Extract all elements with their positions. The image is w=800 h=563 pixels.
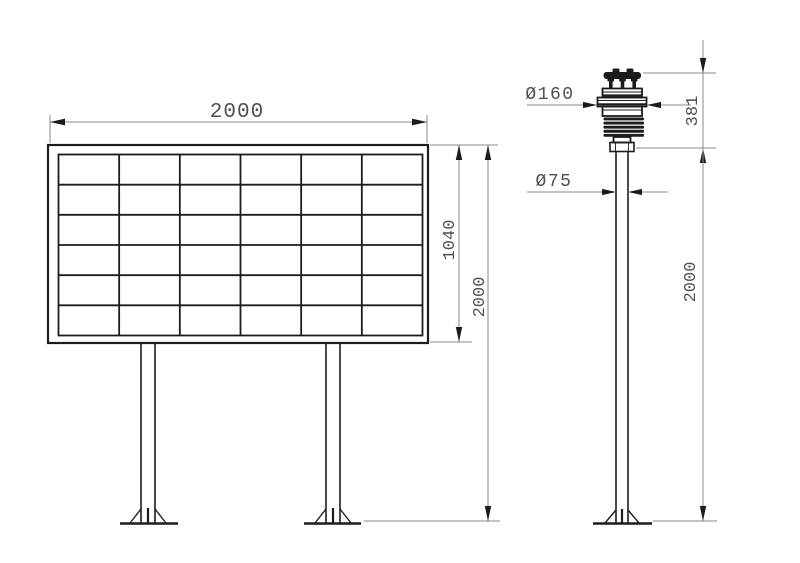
board-dimensions: 2000 1040 2000: [50, 101, 498, 521]
sensor-body-lower: [603, 107, 643, 117]
arrowhead-up: [485, 145, 491, 160]
dim-label-board-total-height: 2000: [471, 277, 490, 318]
sensor-connector: [610, 143, 634, 152]
arrowhead-down: [700, 506, 706, 521]
dim-label-sensor-diameter: Ø160: [525, 85, 574, 105]
board-outer-frame: [48, 145, 428, 343]
technical-drawing-canvas: 2000 1040 2000: [0, 0, 800, 563]
pole-dimensions: Ø160 Ø75 381 2000: [525, 40, 716, 521]
dim-board-total-height: 2000: [471, 145, 491, 521]
board-right-leg: [326, 343, 340, 523]
board-left-base-plate: [120, 508, 178, 524]
arrowhead-right: [602, 189, 616, 195]
dim-pole-height: 2000: [682, 148, 706, 521]
dim-panel-height: 1040: [441, 145, 462, 342]
arrowhead-down: [456, 327, 462, 342]
dim-label-pole-height: 2000: [682, 262, 701, 303]
dim-label-board-width: 2000: [210, 101, 264, 124]
dim-label-panel-height: 1040: [441, 220, 460, 261]
sensor-neck: [614, 137, 631, 143]
display-board: [48, 145, 500, 524]
dim-label-sensor-height: 381: [684, 96, 703, 127]
dim-sensor-height: 381: [684, 40, 706, 148]
arrowhead-left: [647, 102, 661, 108]
panel-grid-lines: [59, 155, 423, 336]
arrowhead-left: [50, 119, 65, 126]
sensor-louvers: [604, 118, 645, 137]
arrowhead-down: [700, 58, 706, 73]
weather-sensor: [598, 69, 647, 152]
pole-base-plate: [593, 509, 652, 524]
arrowhead-up: [456, 145, 462, 160]
arrowhead-down: [485, 506, 491, 521]
arrowhead-left: [628, 189, 642, 195]
dim-label-pole-diameter: Ø75: [536, 172, 573, 192]
board-left-leg: [141, 343, 155, 523]
dim-board-width: 2000: [50, 101, 427, 143]
sensor-posts: [608, 79, 638, 89]
board-right-base-plate: [304, 508, 361, 524]
sensor-top-cap: [604, 72, 642, 79]
arrowhead-right: [412, 119, 427, 126]
pole: [616, 152, 628, 524]
dim-pole-diameter: Ø75: [527, 172, 668, 195]
arrowhead-right: [583, 102, 597, 108]
